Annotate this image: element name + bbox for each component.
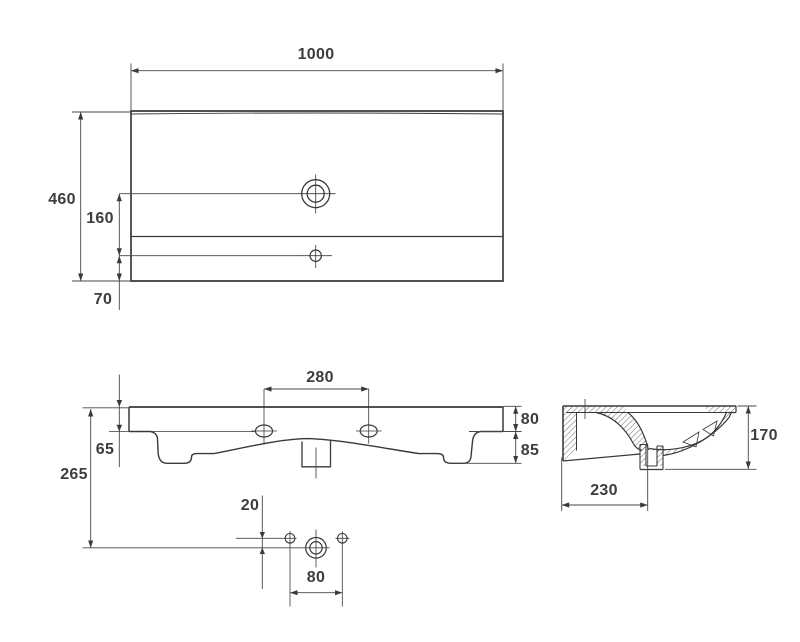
dim-ext-230 bbox=[562, 444, 648, 512]
dim-overflow-front: 70 bbox=[93, 292, 113, 308]
front-view bbox=[83, 375, 522, 607]
hatch-boss-left bbox=[640, 445, 646, 467]
arrow-65-bottom bbox=[117, 425, 123, 432]
fixing-hole-right bbox=[356, 389, 382, 444]
dim-drain-offset: 20 bbox=[240, 498, 260, 514]
drain-hole bbox=[306, 530, 327, 568]
dim-drain-hole-spacing: 80 bbox=[306, 570, 326, 586]
dim-side-height: 170 bbox=[749, 428, 779, 444]
dim-fixing-spacing: 280 bbox=[305, 370, 335, 386]
hatch-front-wall bbox=[563, 413, 577, 462]
washbasin-technical-drawing: 1000 460 160 70 280 265 65 80 85 20 80 1… bbox=[0, 0, 800, 642]
dim-apron-top: 80 bbox=[520, 412, 540, 428]
drain-fixing-hole-right bbox=[336, 531, 350, 607]
arrow-20-bottom bbox=[260, 548, 265, 554]
arrow-65-top bbox=[117, 400, 123, 407]
dim-hole-spacing: 160 bbox=[85, 211, 115, 227]
overflow-hole bbox=[297, 245, 332, 268]
arrow-20-top bbox=[260, 532, 265, 538]
overflow-channel-cut-2 bbox=[703, 421, 717, 436]
fixing-hole-left bbox=[251, 389, 277, 444]
dim-ext-80-85 bbox=[451, 406, 522, 463]
dim-ext-170 bbox=[665, 406, 757, 469]
dim-apron-bottom: 85 bbox=[520, 443, 540, 459]
dim-total-height: 265 bbox=[59, 467, 89, 483]
drain-fixing-hole-left bbox=[285, 531, 295, 607]
side-bottom-edge bbox=[563, 454, 640, 461]
basin-back-inner-edge bbox=[131, 113, 503, 114]
dim-edge-thickness: 65 bbox=[95, 442, 115, 458]
front-right-edge bbox=[481, 407, 503, 432]
dim-top-width: 1000 bbox=[297, 47, 336, 63]
front-underside-profile bbox=[150, 432, 481, 464]
top-view bbox=[72, 64, 503, 311]
dim-drain-from-back: 230 bbox=[589, 483, 619, 499]
hatch-rim-left bbox=[563, 406, 628, 413]
drawing-linework bbox=[0, 0, 800, 642]
front-left-edge bbox=[129, 407, 150, 432]
dim-top-depth: 460 bbox=[47, 192, 77, 208]
faucet-hole bbox=[296, 175, 336, 214]
